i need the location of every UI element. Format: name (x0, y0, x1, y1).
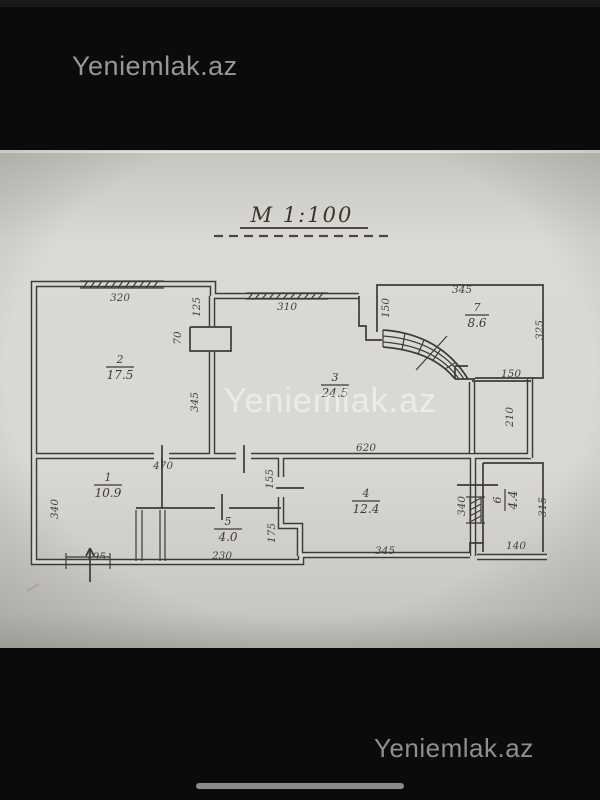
brand-watermark-bottom: Yeniemlak.az (374, 733, 534, 763)
dim-ledge-width: 150 (501, 368, 521, 380)
room4-area: 12.4 (353, 502, 380, 516)
dim-niche-upper: 155 (264, 469, 276, 489)
room6-area: 4.4 (506, 490, 520, 510)
dim-wall23-lower: 345 (189, 392, 201, 412)
dim-room1-top: 470 (152, 460, 173, 472)
dim-room7-left: 150 (380, 298, 392, 318)
room1-area: 10.9 (95, 486, 122, 500)
dim-left-side: 340 (49, 499, 61, 519)
brand-watermark-center: Yeniemlak.az (224, 382, 437, 420)
room7-area: 8.6 (467, 316, 486, 330)
dim-shaft-width: 70 (172, 331, 184, 345)
listing-photo: Yeniemlak.az M 1:100 (0, 0, 600, 800)
room2-number: 2 (116, 353, 124, 366)
scale-title: M 1:100 (250, 203, 354, 227)
dim-room7-right: 325 (534, 320, 546, 340)
top-bar: Yeniemlak.az (0, 0, 600, 151)
dim-room6-bottom: 140 (506, 540, 526, 552)
dim-room5-bottom: 230 (211, 550, 232, 562)
room2-area: 17.5 (107, 368, 134, 382)
dim-ledge-height: 210 (504, 407, 516, 428)
dim-niche-lower: 175 (266, 523, 278, 543)
phone-screenshot: Yeniemlak.az M 1:100 (0, 0, 600, 800)
dim-room6-right: 315 (537, 497, 549, 517)
dim-room4-right: 340 (456, 496, 468, 516)
dim-hall-top: 620 (356, 442, 376, 454)
bottom-bar: Yeniemlak.az (0, 648, 600, 800)
room1-number: 1 (105, 471, 112, 484)
room5-area: 4.0 (217, 530, 237, 544)
room7-number: 7 (474, 301, 481, 314)
dim-room1-bottom: 195 (86, 551, 106, 563)
room4-number: 4 (362, 487, 370, 500)
dim-room3-top: 310 (277, 301, 297, 313)
room5-number: 5 (225, 515, 232, 528)
room6-number: 6 (491, 497, 504, 504)
dim-room7-top: 345 (452, 284, 472, 296)
home-indicator[interactable] (196, 783, 404, 789)
dim-room4-bottom: 345 (375, 545, 395, 557)
brand-watermark-top: Yeniemlak.az (72, 51, 238, 81)
dim-wall23-upper: 125 (191, 297, 203, 317)
dim-room2-top: 320 (110, 292, 130, 304)
